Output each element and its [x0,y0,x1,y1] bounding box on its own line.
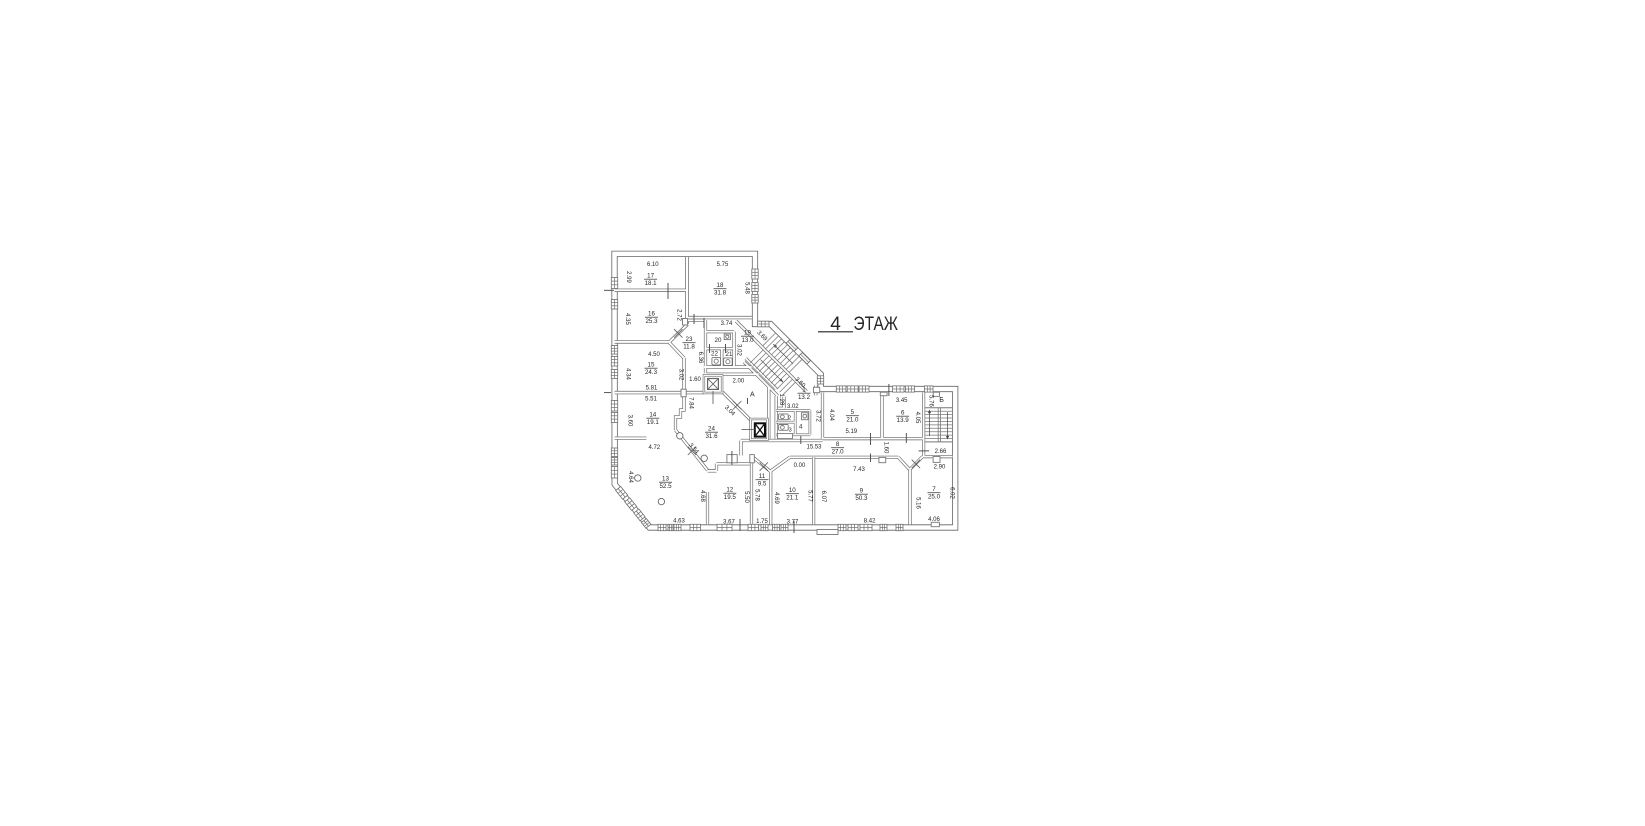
svg-text:4.72: 4.72 [648,445,660,451]
svg-text:9.5: 9.5 [758,480,767,487]
svg-text:5.75: 5.75 [717,262,729,268]
svg-text:20: 20 [715,337,722,344]
svg-text:5.76: 5.76 [928,395,934,407]
svg-text:31.8: 31.8 [714,289,727,296]
svg-text:18.1: 18.1 [645,280,658,287]
svg-text:19: 19 [744,330,751,337]
svg-text:17: 17 [647,273,654,280]
svg-text:5: 5 [851,409,855,416]
svg-text:6.02: 6.02 [949,487,955,499]
svg-text:4.64: 4.64 [627,471,633,483]
svg-text:5.48: 5.48 [743,282,749,294]
svg-text:8: 8 [836,441,840,448]
svg-text:4.34: 4.34 [625,368,631,380]
svg-text:21: 21 [726,351,733,358]
svg-text:15.53: 15.53 [806,445,822,451]
svg-text:4.68: 4.68 [699,490,705,502]
svg-text:11.8: 11.8 [683,343,695,350]
svg-text:5.77: 5.77 [807,490,813,502]
svg-text:4.50: 4.50 [648,352,660,358]
svg-text:7: 7 [932,486,936,493]
svg-text:5.51: 5.51 [645,397,657,403]
svg-text:3: 3 [789,428,792,434]
svg-text:5.81: 5.81 [646,386,658,392]
svg-text:52.5: 52.5 [659,483,672,490]
svg-text:25.3: 25.3 [645,318,658,325]
svg-text:23: 23 [686,336,693,343]
svg-text:А: А [750,392,755,399]
svg-text:21.0: 21.0 [846,416,859,423]
svg-text:3.67: 3.67 [723,520,735,526]
svg-text:15: 15 [648,362,655,369]
svg-text:3.60: 3.60 [627,415,633,427]
svg-text:31.6: 31.6 [705,433,718,440]
svg-text:27.0: 27.0 [832,448,845,455]
svg-text:8.42: 8.42 [864,519,876,525]
svg-text:4.63: 4.63 [673,519,685,525]
svg-text:50.3: 50.3 [855,495,868,502]
svg-text:3.77: 3.77 [787,520,799,526]
svg-text:22: 22 [711,351,718,358]
svg-text:2.99: 2.99 [625,271,631,283]
svg-text:5.50: 5.50 [743,491,749,503]
svg-text:3.74: 3.74 [721,321,733,327]
svg-text:2.90: 2.90 [934,465,946,471]
svg-text:1.60: 1.60 [689,377,701,383]
svg-text:2.66: 2.66 [935,449,947,455]
svg-text:1.28: 1.28 [778,394,784,406]
svg-text:4.69: 4.69 [773,492,779,504]
svg-text:19.1: 19.1 [647,419,660,426]
svg-text:21.1: 21.1 [786,494,799,501]
svg-text:13.2: 13.2 [798,394,811,401]
svg-text:4: 4 [799,424,803,431]
svg-text:6.07: 6.07 [820,491,826,503]
svg-text:1.75: 1.75 [756,519,768,525]
svg-text:24: 24 [708,426,715,433]
svg-text:16: 16 [648,311,655,318]
svg-text:13.0: 13.0 [741,337,754,344]
svg-text:3.02: 3.02 [678,369,684,381]
svg-text:2: 2 [788,416,791,422]
svg-text:14: 14 [649,412,656,419]
svg-text:10: 10 [789,487,796,494]
svg-text:2.00: 2.00 [733,379,745,385]
svg-text:25.0: 25.0 [928,493,941,500]
svg-text:4.35: 4.35 [624,313,630,325]
svg-text:7.43: 7.43 [853,467,865,473]
svg-text:5.19: 5.19 [845,429,857,435]
svg-text:3.02: 3.02 [787,404,799,410]
svg-text:13: 13 [662,476,669,483]
svg-text:4.04: 4.04 [828,409,834,421]
svg-text:19.5: 19.5 [724,494,737,501]
svg-text:6.10: 6.10 [647,262,659,268]
svg-text:2.72: 2.72 [675,309,681,321]
svg-text:24.3: 24.3 [645,369,658,376]
svg-text:0.00: 0.00 [794,463,806,469]
svg-text:9: 9 [860,488,864,495]
svg-text:3.45: 3.45 [896,398,908,404]
svg-text:7.84: 7.84 [688,397,694,409]
svg-text:13.9: 13.9 [897,417,910,424]
svg-text:3.02: 3.02 [735,344,741,356]
svg-text:4.06: 4.06 [928,517,940,523]
svg-text:6: 6 [901,410,905,417]
svg-text:4.05: 4.05 [914,412,920,424]
svg-text:3.72: 3.72 [814,410,820,422]
svg-text:Б: Б [939,397,944,404]
svg-text:11: 11 [759,473,766,480]
svg-text:12: 12 [726,487,733,494]
svg-text:1.60: 1.60 [883,442,889,454]
svg-text:ЭТАЖ: ЭТАЖ [854,314,899,335]
svg-text:5.16: 5.16 [914,497,920,509]
svg-text:5.78: 5.78 [754,489,760,501]
svg-text:6.36: 6.36 [697,352,703,364]
svg-text:18: 18 [717,282,724,289]
